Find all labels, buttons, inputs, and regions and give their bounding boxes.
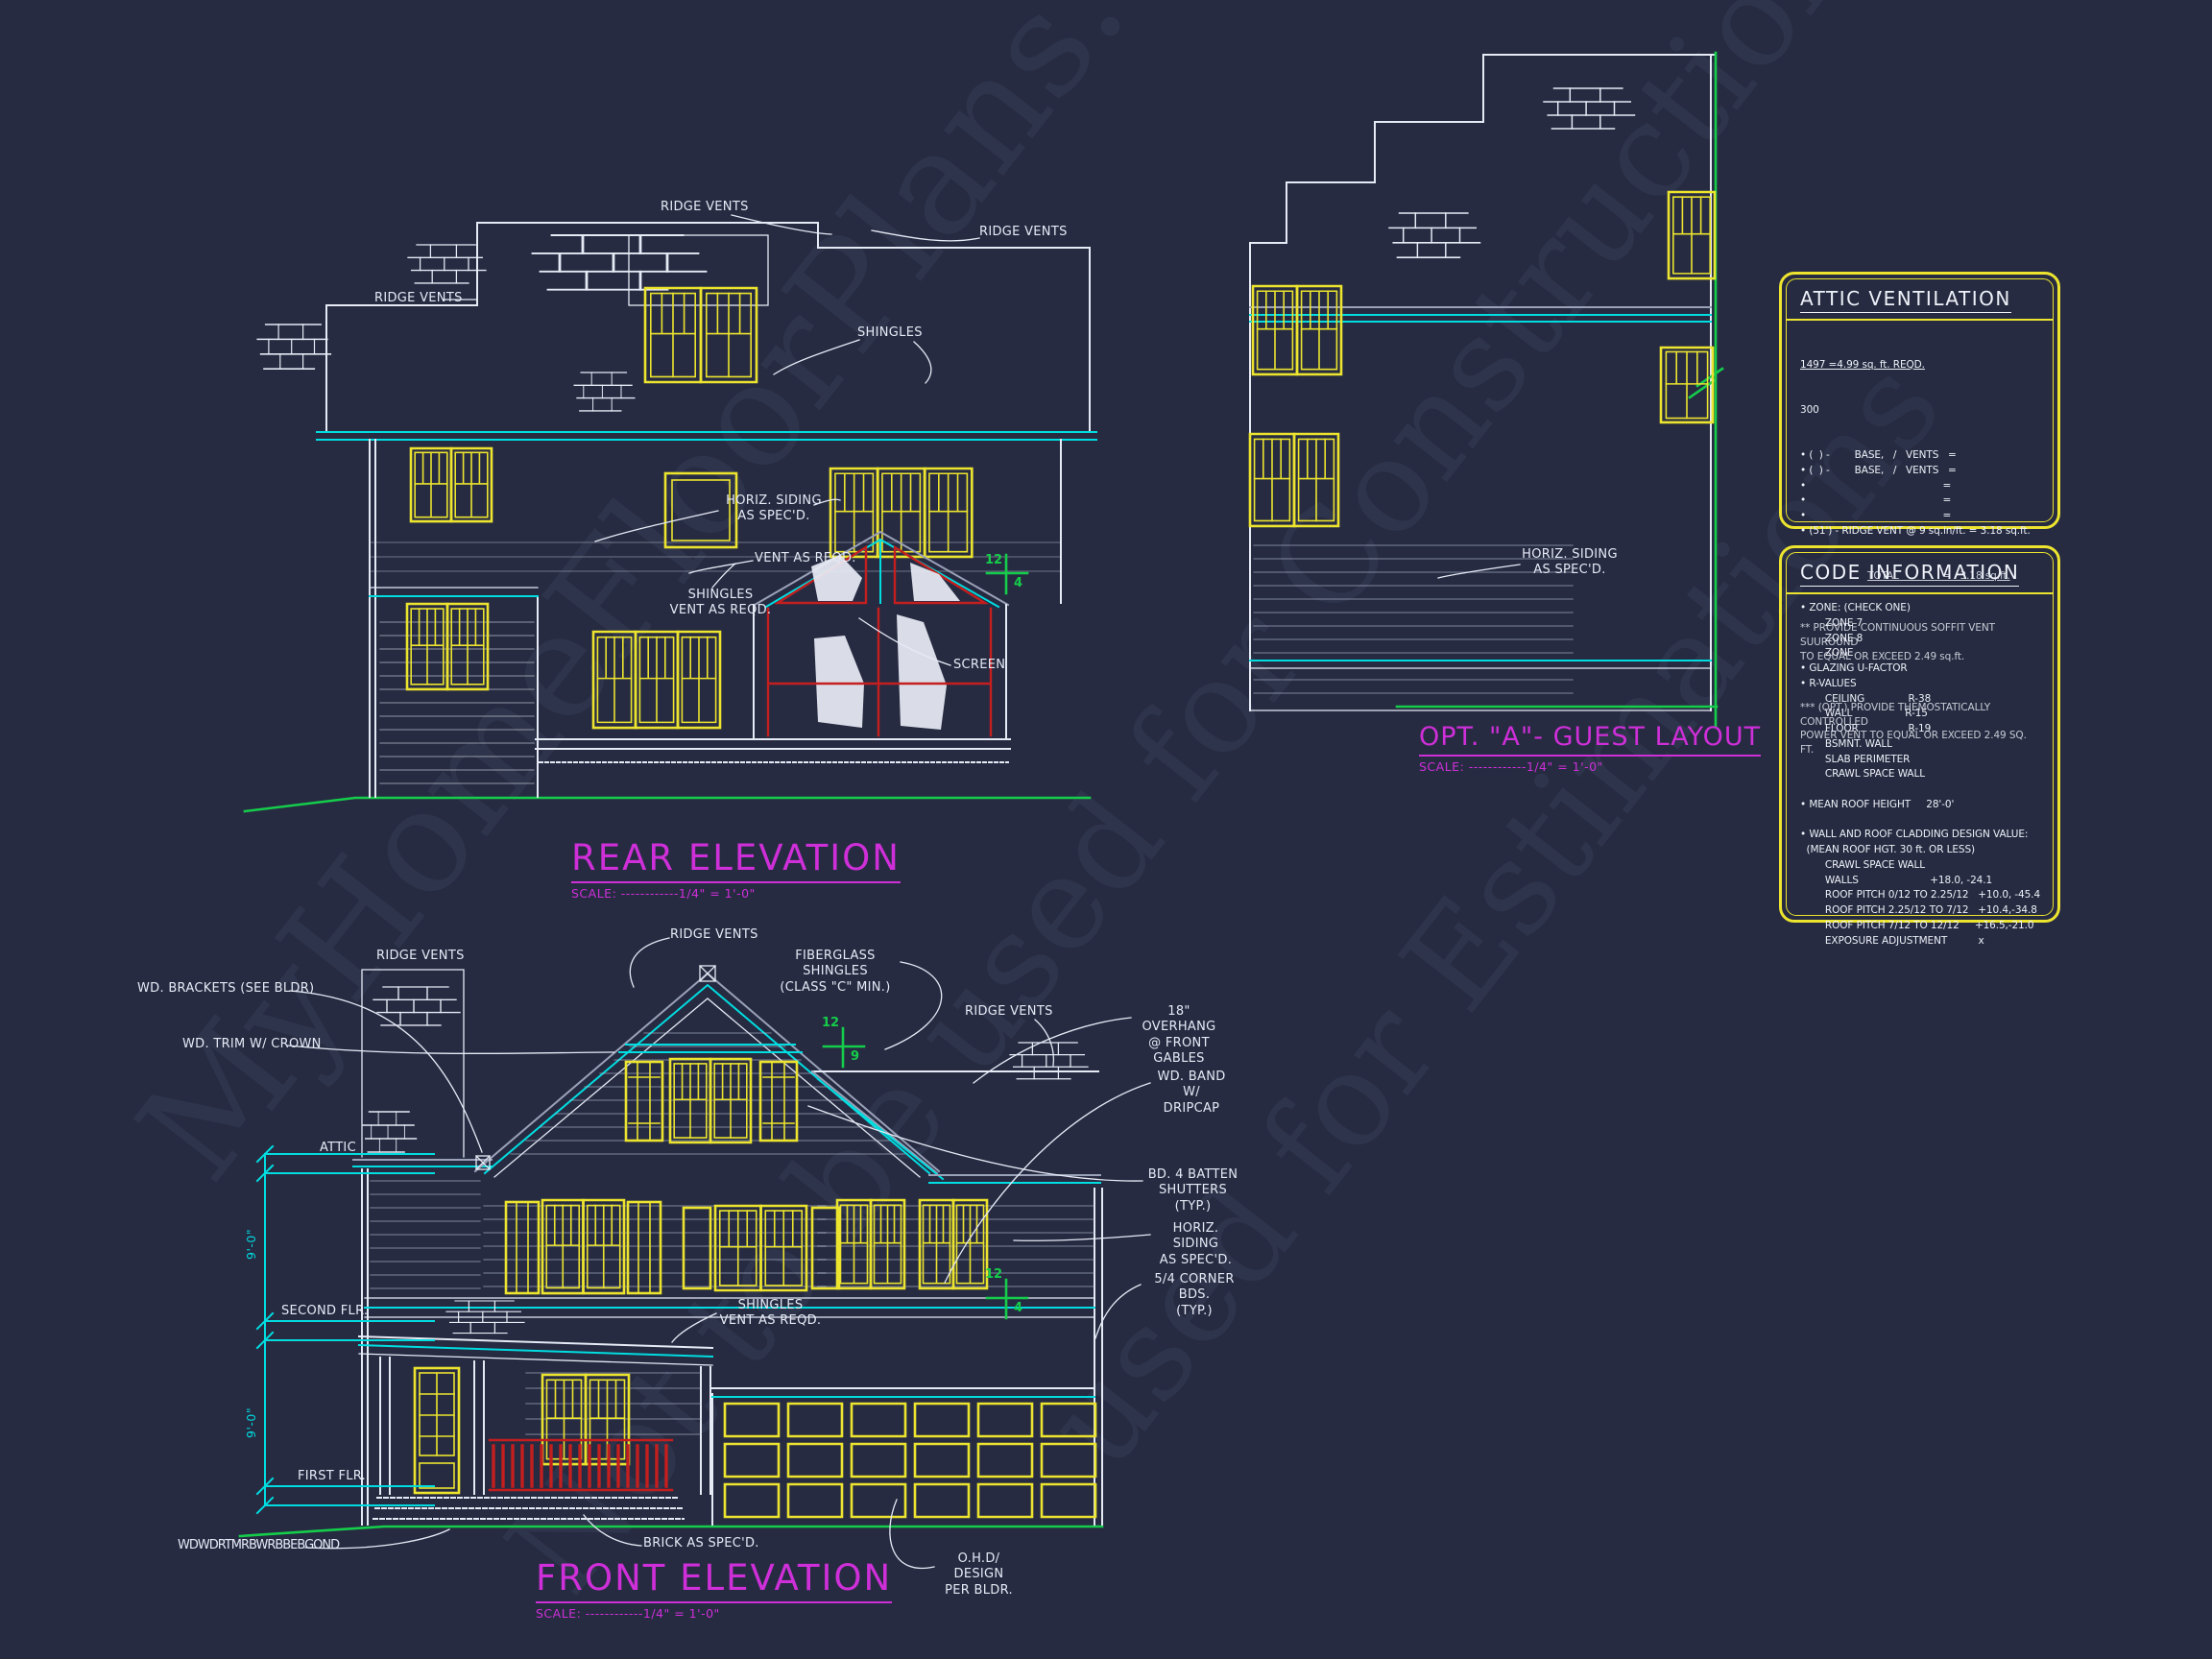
front-label-shutters: BD. 4 BATTEN SHUTTERS (TYP.) [1142, 1167, 1243, 1214]
text-line: SLAB PERIMETER [1800, 753, 2041, 768]
attic-ventilation-title: ATTIC VENTILATION [1800, 287, 2011, 313]
text-line [1800, 813, 2041, 829]
porch-railing [490, 1440, 672, 1490]
front-label-corner-bds: 5/4 CORNER BDS. (TYP.) [1141, 1272, 1248, 1319]
front-door [415, 1368, 459, 1493]
title-text: REAR ELEVATION [571, 837, 901, 883]
dim-attic-to-second: 9'-0" [244, 1229, 258, 1260]
blueprint-sheet: MyHomeFloorPlans.com Not to be used for … [0, 0, 2212, 1659]
rear-label-vent-as-reqd: VENT AS REQD. [755, 551, 856, 566]
dimension-lines [257, 1146, 434, 1513]
vent-calc-denominator: 300 [1800, 403, 2041, 419]
front-label-ridge-vents-center: RIDGE VENTS [670, 927, 758, 943]
title-text: OPT. "A"- GUEST LAYOUT [1419, 722, 1761, 757]
scale-text: SCALE: ------------1/4" = 1'-0" [1419, 759, 1761, 774]
dim-second-to-first: 9'-0" [244, 1407, 258, 1438]
text-line: • (51') - RIDGE VENT @ 9 sq.in/ft. = 3.1… [1800, 524, 2041, 540]
title-text: FRONT ELEVATION [536, 1557, 892, 1603]
rear-label-ridge-vents-left: RIDGE VENTS [374, 291, 463, 306]
code-lines: • ZONE: (CHECK ONE) ZONE 7 ZONE 8 ZONE• … [1800, 601, 2041, 949]
text-line: • ( ) - BASE, / VENTS = [1800, 448, 2041, 464]
text-line: (MEAN ROOF HGT. 30 ft. OR LESS) [1800, 843, 2041, 858]
rear-label-screen: SCREEN [953, 658, 1005, 673]
front-label-wd-brackets: WD. BRACKETS (SEE BLDR) [137, 981, 314, 997]
front-label-grade-note: WDWDRTMRBWRBBEBGOND [178, 1538, 339, 1553]
text-line [1800, 782, 2041, 798]
text-line: ZONE 8 [1800, 632, 2041, 647]
guest-layout-title: OPT. "A"- GUEST LAYOUT SCALE: ----------… [1419, 722, 1761, 774]
panel-inner: ATTIC VENTILATION 1497 =4.99 sq. ft. REQ… [1786, 278, 2054, 522]
front-label-second-flr: SECOND FLR. [281, 1304, 368, 1319]
rear-label-ridge-vents-right: RIDGE VENTS [979, 225, 1068, 240]
attic-ventilation-panel: ATTIC VENTILATION 1497 =4.99 sq. ft. REQ… [1779, 272, 2060, 529]
rear-elevation-drawing [245, 215, 1096, 811]
scale-text: SCALE: ------------1/4" = 1'-0" [536, 1606, 892, 1621]
front-label-ohd: O.H.D/ DESIGN PER BLDR. [933, 1551, 1024, 1599]
guest-layout-drawing [1250, 53, 1722, 727]
front-label-ridge-vents-right: RIDGE VENTS [965, 1004, 1053, 1020]
front-label-first-flr: FIRST FLR. [298, 1469, 366, 1484]
text-line: ZONE 7 [1800, 616, 2041, 632]
text-line: • ( ) - BASE, / VENTS = [1800, 464, 2041, 479]
front-label-fiberglass: FIBERGLASS SHINGLES (CLASS "C" MIN.) [768, 949, 902, 996]
front-label-attic: ATTIC [320, 1141, 356, 1156]
panel-divider [1787, 592, 2053, 594]
scale-text: SCALE: ------------1/4" = 1'-0" [571, 886, 901, 901]
code-information-panel: CODE INFORMATION • ZONE: (CHECK ONE) ZON… [1779, 545, 2060, 923]
vent-lines: • ( ) - BASE, / VENTS =• ( ) - BASE, / V… [1800, 448, 2041, 540]
front-label-ridge-vents-left: RIDGE VENTS [376, 949, 465, 964]
rear-label-horiz-siding: HORIZ. SIDING AS SPEC'D. [720, 493, 828, 525]
rear-label-shingles-vent: SHINGLES VENT AS REQD. [661, 588, 781, 619]
front-label-brick: BRICK AS SPEC'D. [643, 1536, 759, 1551]
text-line: • = [1800, 479, 2041, 494]
text-line: • GLAZING U-FACTOR [1800, 661, 2041, 677]
text-line: • WALL AND ROOF CLADDING DESIGN VALUE: [1800, 828, 2041, 843]
text-line: WALL R-15 [1800, 707, 2041, 722]
guest-windows [1250, 192, 1715, 526]
front-label-wd-band: WD. BAND W/ DRIPCAP [1148, 1070, 1235, 1117]
front-label-horiz-siding: HORIZ. SIDING AS SPEC'D. [1150, 1221, 1241, 1268]
code-information-title: CODE INFORMATION [1800, 561, 2019, 587]
rear-pitch-run: 4 [1014, 576, 1022, 590]
text-line: BSMNT. WALL [1800, 737, 2041, 753]
text-line: ROOF PITCH 0/12 TO 2.25/12 +10.0, -45.4 [1800, 888, 2041, 903]
panel-inner: CODE INFORMATION • ZONE: (CHECK ONE) ZON… [1786, 552, 2054, 916]
text-line: • ZONE: (CHECK ONE) [1800, 601, 2041, 616]
text-line: CEILING R-38 [1800, 692, 2041, 708]
text-line: • R-VALUES [1800, 677, 2041, 692]
panel-divider [1787, 319, 2053, 321]
rear-pitch-rise: 12 [985, 553, 1002, 567]
front-gable-pitch-r: 12 [822, 1016, 839, 1030]
garage-door [712, 1388, 1095, 1525]
rear-label-ridge-vents-center: RIDGE VENTS [661, 200, 749, 215]
vent-calc-numerator: 1497 =4.99 sq. ft. REQD. [1800, 358, 2041, 373]
rear-label-shingles: SHINGLES [857, 325, 923, 341]
text-line: CRAWL SPACE WALL [1800, 858, 2041, 874]
text-line: EXPOSURE ADJUSTMENT x [1800, 934, 2041, 950]
front-right-pitch-r: 12 [985, 1267, 1002, 1282]
text-line: • = [1800, 493, 2041, 509]
text-line: WALLS +18.0, -24.1 [1800, 874, 2041, 889]
text-line: FLOOR R-19 [1800, 722, 2041, 737]
front-label-shingles-vent: SHINGLES VENT AS REQD. [715, 1298, 826, 1330]
text-line: ZONE [1800, 646, 2041, 661]
rear-elevation-title: REAR ELEVATION SCALE: ------------1/4" =… [571, 837, 901, 901]
front-gable-pitch-n: 9 [851, 1049, 859, 1064]
text-line: ROOF PITCH 7/12 TO 12/12 +16.5,-21.0 [1800, 919, 2041, 934]
front-elevation-drawing [240, 938, 1150, 1568]
front-right-pitch-n: 4 [1014, 1301, 1022, 1315]
text-line: ROOF PITCH 2.25/12 TO 7/12 +10.4,-34.8 [1800, 903, 2041, 919]
front-label-wd-trim: WD. TRIM W/ CROWN [182, 1037, 322, 1052]
guest-label-horiz-siding: HORIZ. SIDING AS SPEC'D. [1522, 547, 1618, 579]
front-elevation-title: FRONT ELEVATION SCALE: ------------1/4" … [536, 1557, 892, 1621]
front-label-overhang: 18" OVERHANG @ FRONT GABLES [1131, 1004, 1227, 1067]
text-line: CRAWL SPACE WALL [1800, 767, 2041, 782]
text-line: • MEAN ROOF HEIGHT 28'-0' [1800, 798, 2041, 813]
text-line: • = [1800, 509, 2041, 524]
